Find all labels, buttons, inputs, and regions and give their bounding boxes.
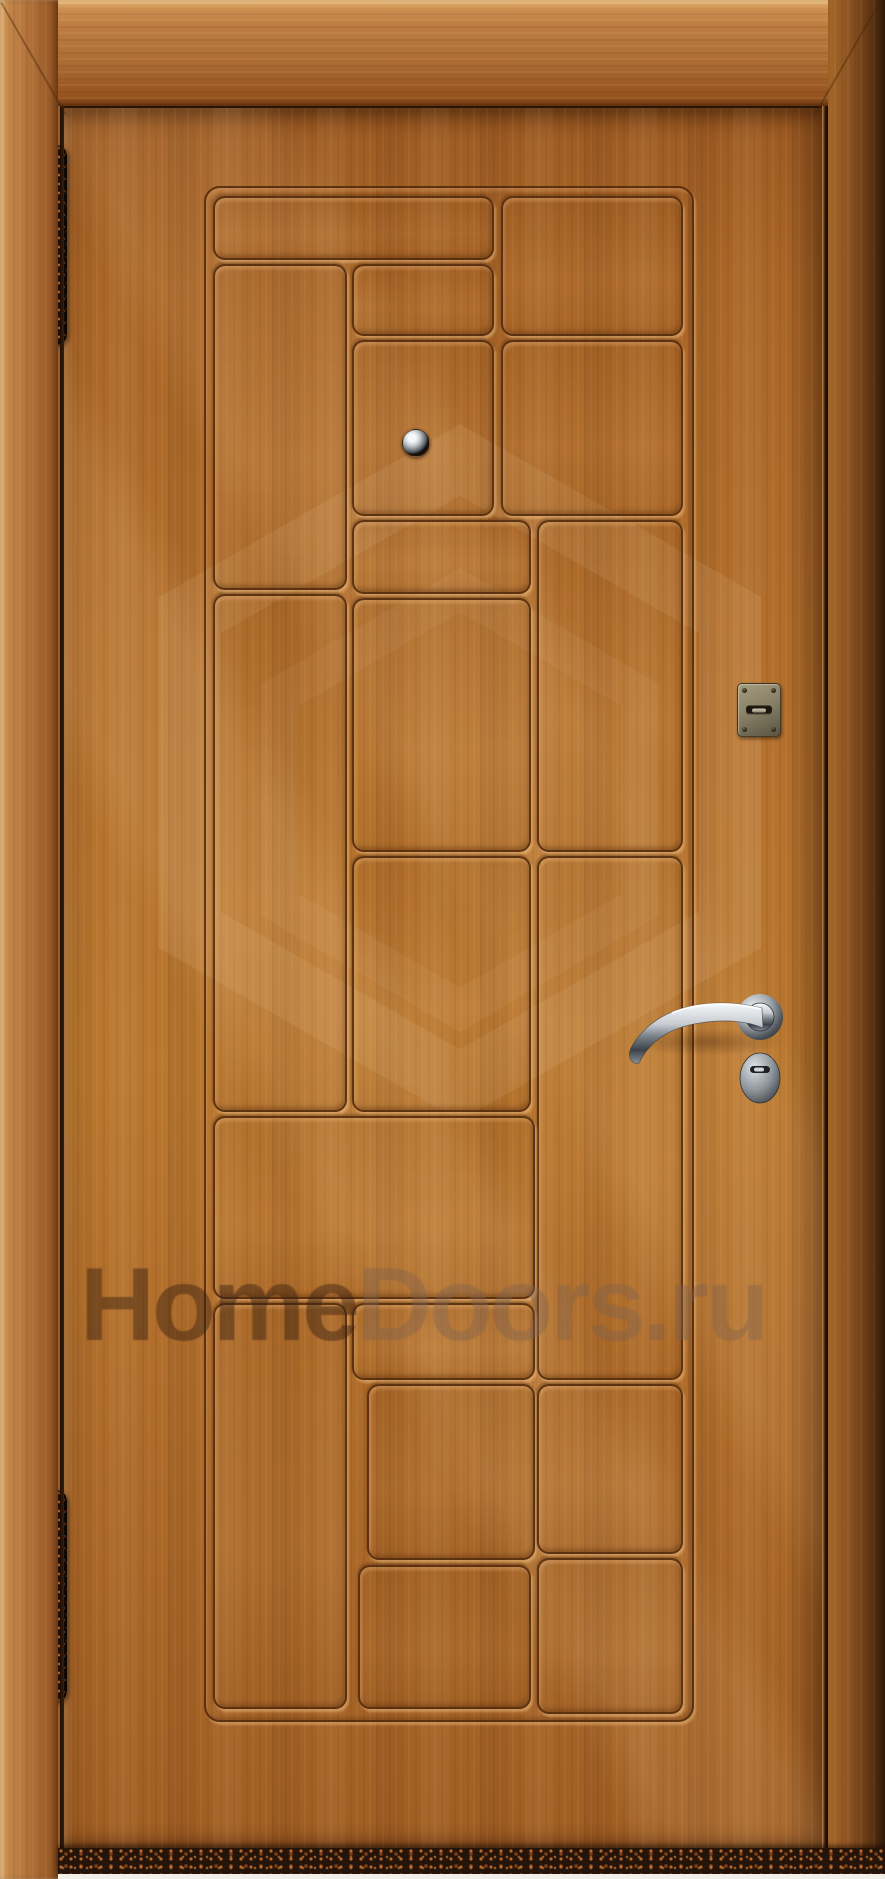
floor-strip xyxy=(58,1874,885,1879)
panel-groove xyxy=(537,520,683,852)
cylinder-pin xyxy=(754,1068,764,1072)
panel-groove xyxy=(352,340,494,516)
lock-cylinder[interactable] xyxy=(740,1053,780,1103)
keyhole-slot xyxy=(746,706,772,715)
watermark-text-secondary: Doors.ru xyxy=(357,1247,766,1363)
panel-groove xyxy=(367,1384,535,1560)
peephole xyxy=(402,429,430,457)
panel-groove xyxy=(213,196,494,260)
panel-groove xyxy=(352,264,494,336)
panel-groove xyxy=(213,594,347,1112)
wood-grain-texture xyxy=(0,0,58,1879)
door-handle[interactable] xyxy=(612,980,812,1115)
screw-icon xyxy=(771,688,776,693)
screw-icon xyxy=(771,727,776,732)
screw-icon xyxy=(742,688,747,693)
panel-groove xyxy=(501,196,683,336)
door-frame-left xyxy=(0,0,58,1879)
watermark-text: HomeDoors.ru xyxy=(80,1246,766,1365)
door-frame-right xyxy=(828,0,885,1879)
panel-groove xyxy=(213,264,347,590)
panel-groove xyxy=(352,598,531,852)
panel-groove xyxy=(352,520,531,594)
panel-groove xyxy=(537,1384,683,1554)
watermark-text-primary: Home xyxy=(80,1247,357,1363)
keyhole-plate xyxy=(737,683,781,737)
panel-groove xyxy=(537,1558,683,1714)
wood-grain-texture xyxy=(828,0,885,1879)
threshold-strip xyxy=(58,1848,885,1874)
leaf-frame-gap-left xyxy=(60,106,64,1850)
wood-grain-texture xyxy=(0,0,885,106)
door-photo: HomeDoors.ru xyxy=(0,0,885,1879)
screw-icon xyxy=(742,727,747,732)
panel-groove xyxy=(352,856,531,1112)
door-frame-top xyxy=(0,0,885,106)
panel-groove xyxy=(358,1565,531,1709)
panel-groove xyxy=(501,340,683,516)
keyhole-bar xyxy=(752,708,766,712)
